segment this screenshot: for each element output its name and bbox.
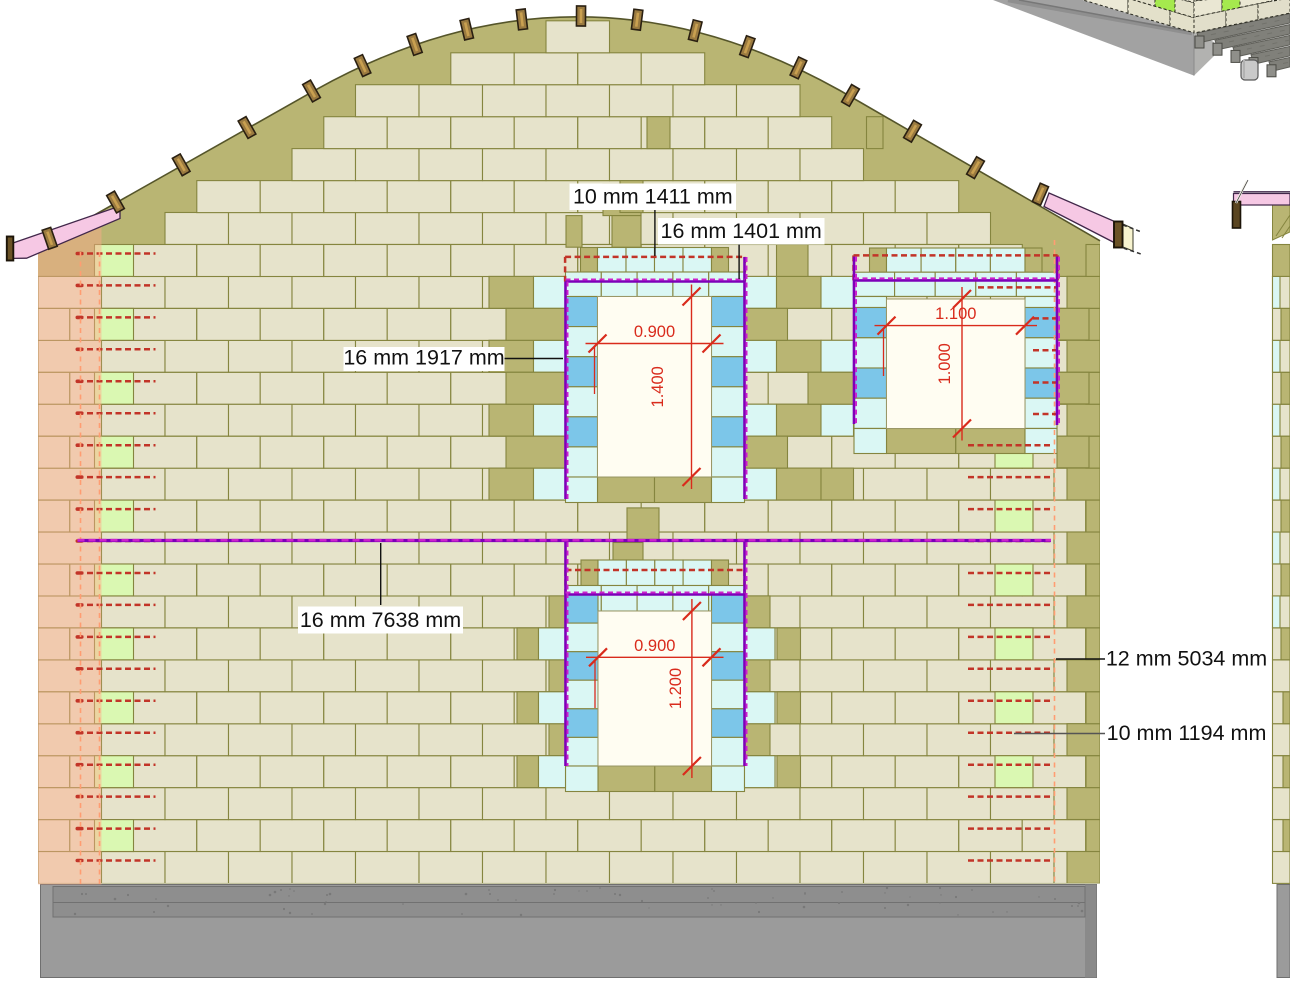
svg-text:1.400: 1.400 (649, 366, 667, 407)
svg-text:16 mm 1917 mm: 16 mm 1917 mm (343, 346, 504, 370)
svg-text:12 mm 5034 mm: 12 mm 5034 mm (1106, 647, 1267, 671)
svg-text:1.000: 1.000 (936, 343, 954, 384)
svg-text:1.200: 1.200 (667, 668, 685, 709)
svg-text:0.900: 0.900 (634, 637, 675, 655)
svg-text:10 mm 1411 mm: 10 mm 1411 mm (573, 185, 733, 209)
svg-text:16 mm 7638 mm: 16 mm 7638 mm (300, 608, 461, 632)
svg-text:1.100: 1.100 (935, 305, 976, 323)
svg-text:10 mm 1194 mm: 10 mm 1194 mm (1107, 721, 1267, 745)
svg-text:16 mm 1401 mm: 16 mm 1401 mm (661, 219, 822, 243)
svg-text:0.900: 0.900 (634, 323, 675, 341)
